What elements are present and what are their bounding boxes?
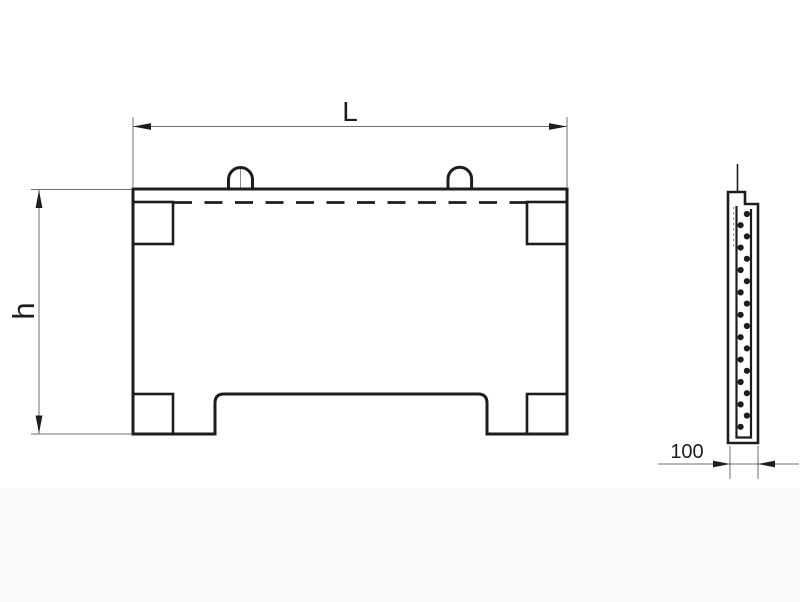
rebar-dot <box>744 256 750 262</box>
arrowhead-right-icon <box>758 461 775 468</box>
rebar-dot <box>738 267 744 273</box>
panel-outline <box>133 189 567 434</box>
rebar-dot <box>738 357 744 363</box>
drawing-canvas: L h 100 <box>0 0 800 602</box>
rebar-dot <box>744 390 750 396</box>
rebar-dot <box>744 413 750 419</box>
rebar-dot <box>738 312 744 318</box>
rebar-dot <box>744 233 750 239</box>
arrowhead-left-icon <box>713 461 730 468</box>
side-view <box>728 164 758 443</box>
rebar-dot <box>744 368 750 374</box>
background-band <box>0 488 800 602</box>
front-view <box>133 167 567 434</box>
rebar-dot <box>738 379 744 385</box>
rebar-dot <box>738 222 744 228</box>
rebar-dot <box>744 323 750 329</box>
dimension-thickness: 100 <box>658 441 799 479</box>
rebar-dot <box>738 424 744 430</box>
rebar-dot <box>738 401 744 407</box>
dimension-height: h <box>6 190 132 435</box>
arrowhead-top-icon <box>36 190 43 208</box>
rebar-dot <box>738 334 744 340</box>
arrowhead-right-icon <box>549 123 567 130</box>
rebar-dot <box>738 245 744 251</box>
rebar-dot <box>738 289 744 295</box>
technical-drawing: L h 100 <box>0 0 800 602</box>
dimension-length: L <box>133 96 567 187</box>
arrowhead-bottom-icon <box>36 416 43 434</box>
height-label: h <box>6 302 41 319</box>
rebar-dot <box>744 278 750 284</box>
thickness-label: 100 <box>670 441 703 463</box>
lifting-loop-right <box>448 167 472 189</box>
rebar-dot <box>744 211 750 217</box>
length-label: L <box>342 96 358 127</box>
rebar-dot <box>744 301 750 307</box>
arrowhead-left-icon <box>133 123 151 130</box>
rebar-dot <box>744 345 750 351</box>
